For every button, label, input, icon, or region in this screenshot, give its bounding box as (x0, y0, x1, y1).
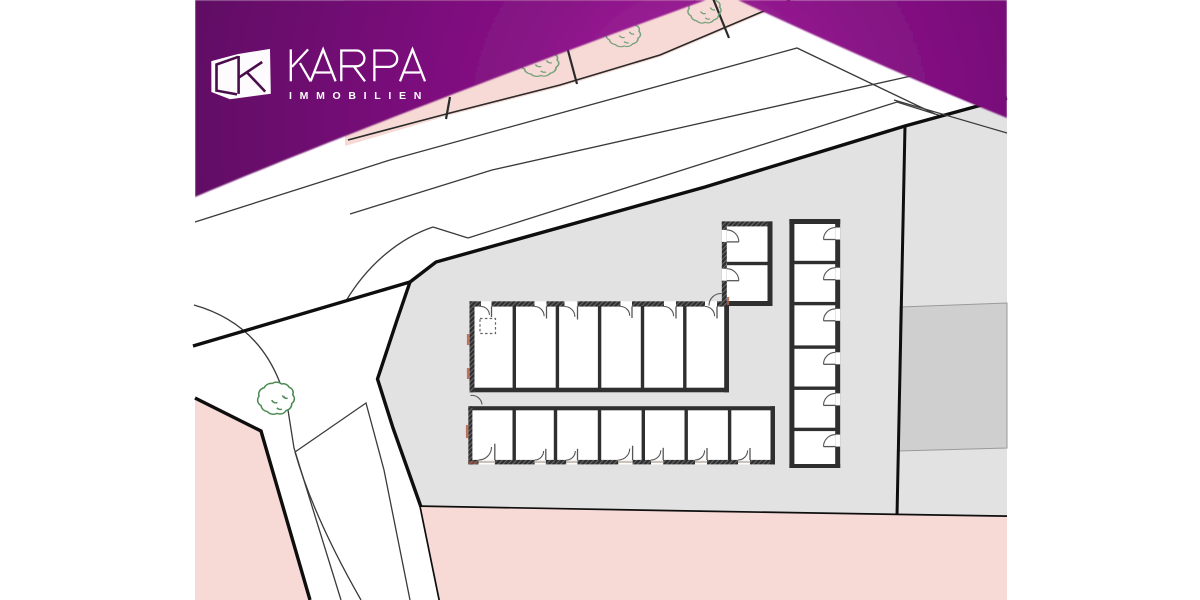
svg-text:IMMOBILIEN: IMMOBILIEN (289, 90, 429, 102)
